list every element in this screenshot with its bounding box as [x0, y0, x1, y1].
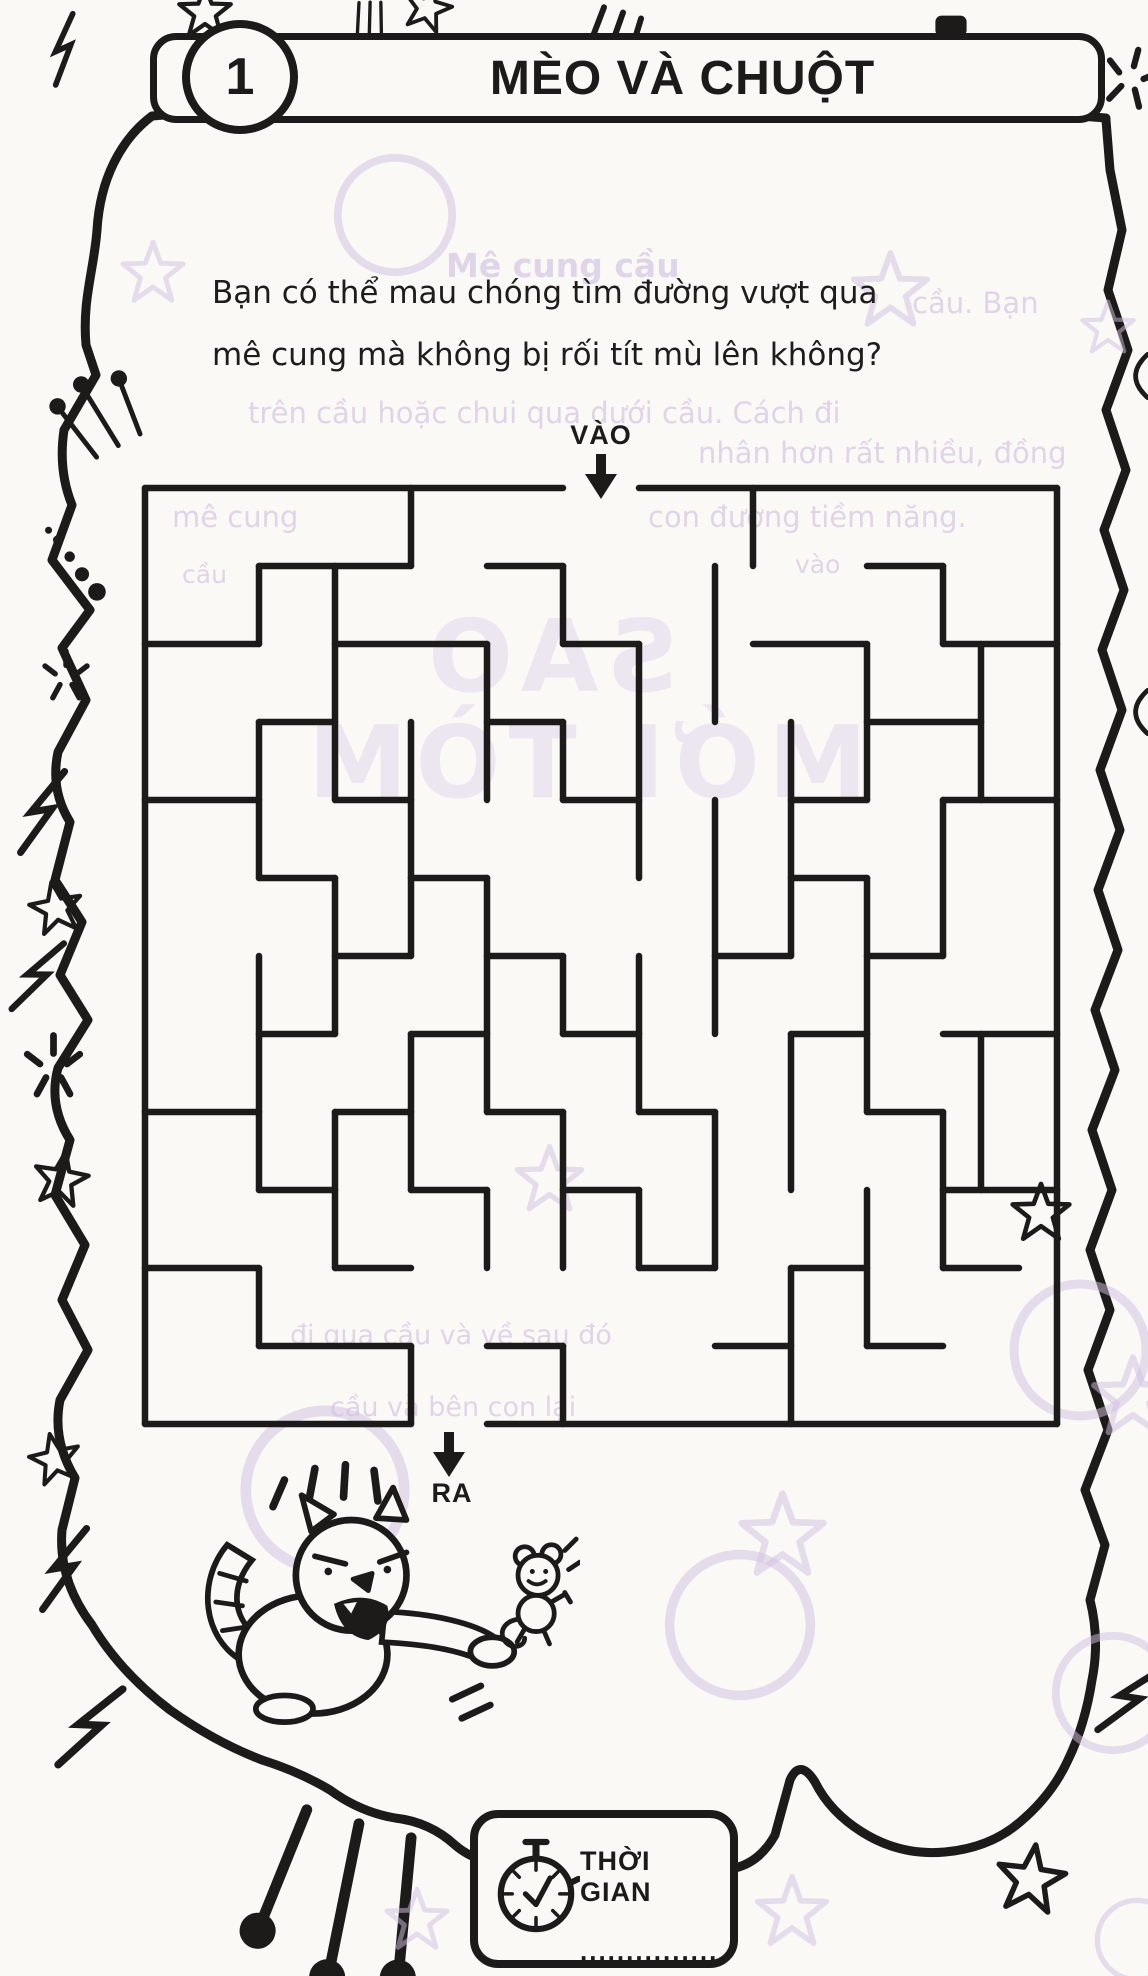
time-entry-line[interactable]: ............... [580, 1936, 718, 1967]
stopwatch-icon [492, 1834, 580, 1938]
puzzle-number: 1 [226, 47, 255, 107]
maze-entry-label: VÀO [570, 420, 632, 451]
time-record-box: THỜI GIAN ............... [470, 1810, 738, 1968]
page-title: MÈO VÀ CHUỘT [380, 51, 875, 106]
puzzle-book-page: Mê cung cầucầu. Bạntrên cầu hoặc chui qu… [0, 0, 1148, 1976]
entry-arrow-icon [583, 454, 619, 500]
puzzle-number-badge: 1 [182, 20, 298, 134]
cat-and-mouse-illustration [170, 1452, 580, 1752]
timer-label: THỜI GIAN [580, 1846, 718, 1908]
instruction-line-1: Bạn có thể mau chóng tìm đường vượt qua [212, 262, 992, 324]
maze[interactable] [145, 488, 1057, 1424]
instruction-line-2: mê cung mà không bị rối tít mù lên không… [212, 324, 992, 386]
instruction-text: Bạn có thể mau chóng tìm đường vượt qua … [212, 262, 992, 386]
